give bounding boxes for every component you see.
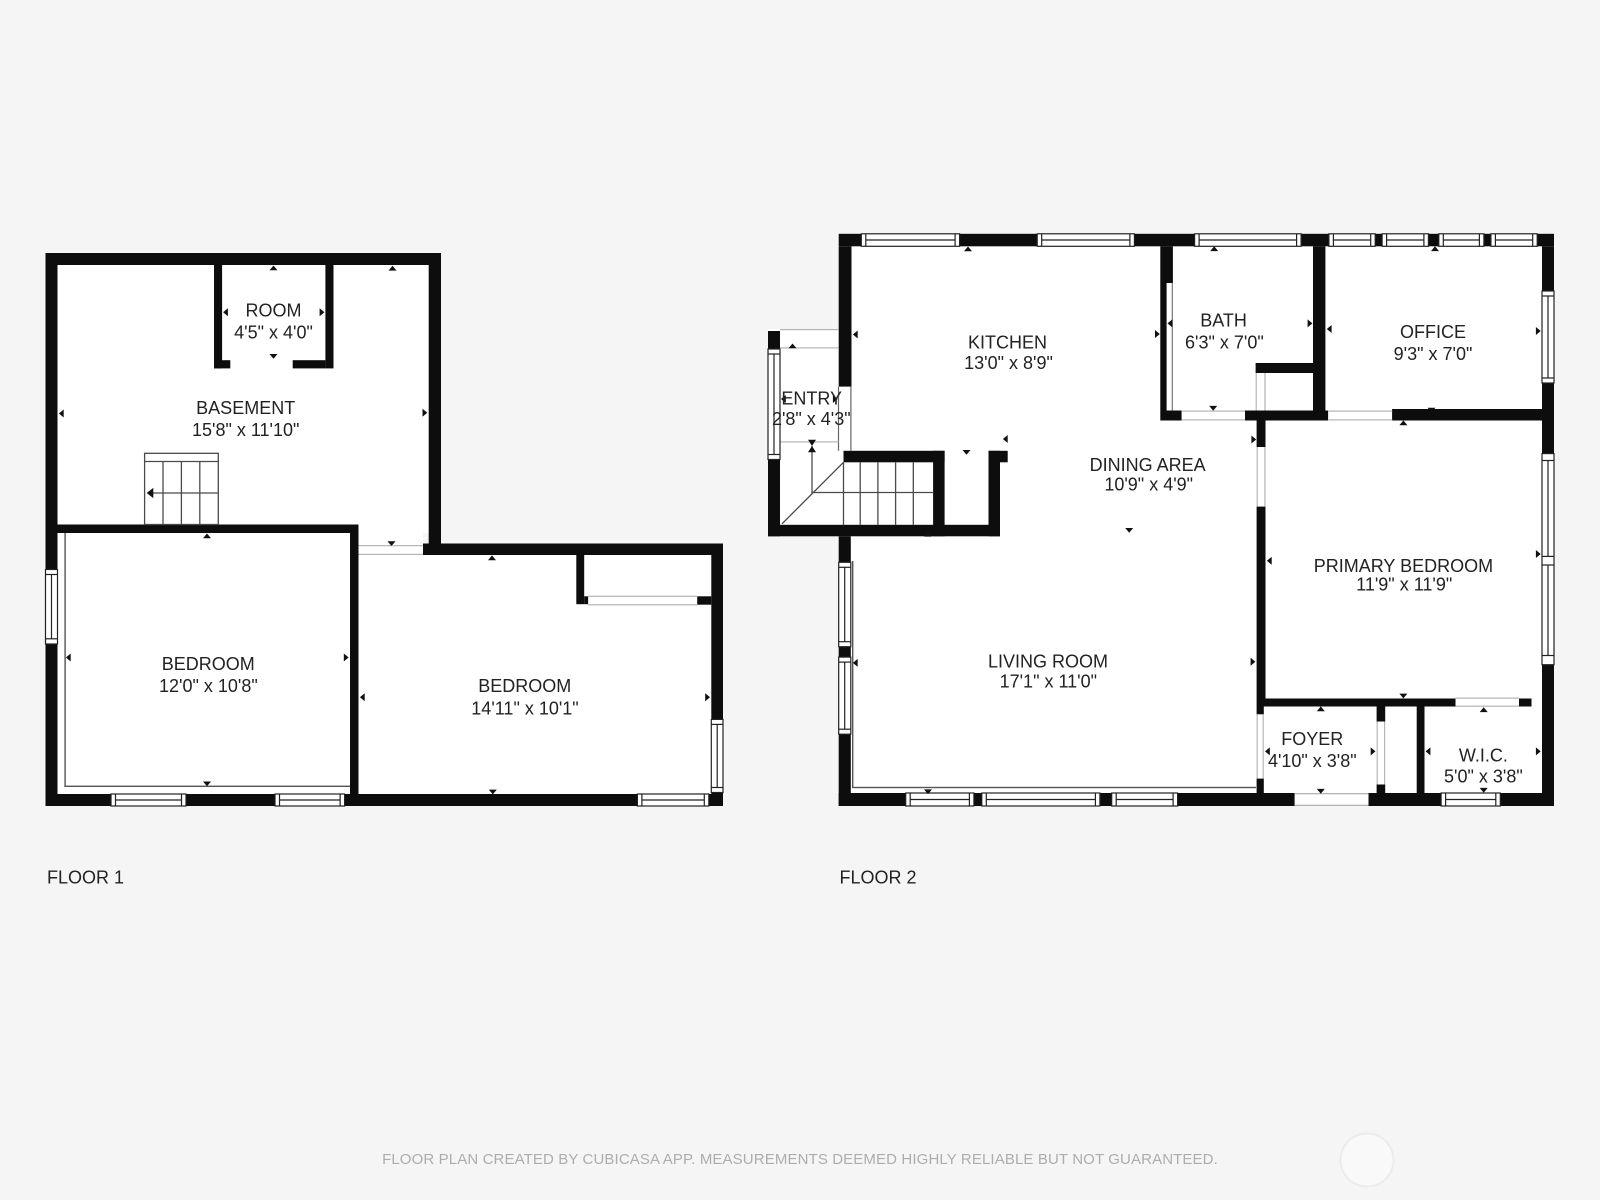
svg-text:ROOM: ROOM [246, 301, 302, 321]
svg-text:4'10" x 3'8": 4'10" x 3'8" [1268, 751, 1357, 771]
svg-text:13'0" x 8'9": 13'0" x 8'9" [964, 353, 1053, 373]
svg-text:10'9" x 4'9": 10'9" x 4'9" [1104, 475, 1193, 495]
svg-text:6'3" x 7'0": 6'3" x 7'0" [1185, 333, 1264, 353]
svg-text:W.I.C.: W.I.C. [1459, 746, 1508, 766]
svg-text:BATH: BATH [1200, 311, 1247, 331]
svg-text:FOYER: FOYER [1281, 729, 1343, 749]
svg-text:15'8" x 11'10": 15'8" x 11'10" [192, 420, 299, 440]
svg-text:FLOOR PLAN CREATED BY CUBICASA: FLOOR PLAN CREATED BY CUBICASA APP. MEAS… [382, 1151, 1218, 1168]
svg-text:FLOOR 2: FLOOR 2 [840, 868, 917, 888]
svg-text:17'1" x 11'0": 17'1" x 11'0" [1000, 671, 1097, 691]
svg-text:DINING AREA: DINING AREA [1090, 455, 1206, 475]
svg-text:PRIMARY BEDROOM: PRIMARY BEDROOM [1314, 556, 1493, 576]
svg-text:BEDROOM: BEDROOM [478, 676, 571, 696]
svg-text:OFFICE: OFFICE [1400, 322, 1466, 342]
svg-text:BEDROOM: BEDROOM [162, 654, 255, 674]
svg-text:BASEMENT: BASEMENT [196, 398, 295, 418]
svg-text:FLOOR 1: FLOOR 1 [47, 868, 124, 888]
svg-text:12'0" x 10'8": 12'0" x 10'8" [159, 676, 258, 696]
svg-text:11'9" x 11'9": 11'9" x 11'9" [1356, 575, 1452, 595]
svg-text:14'11" x 10'1": 14'11" x 10'1" [471, 698, 578, 718]
svg-text:9'3" x 7'0": 9'3" x 7'0" [1394, 344, 1473, 364]
svg-text:KITCHEN: KITCHEN [968, 333, 1047, 353]
svg-text:4'5" x 4'0": 4'5" x 4'0" [234, 323, 313, 343]
svg-text:5'0" x 3'8": 5'0" x 3'8" [1444, 767, 1523, 787]
svg-text:LIVING ROOM: LIVING ROOM [988, 652, 1108, 672]
svg-text:ENTRY: ENTRY [781, 388, 842, 408]
svg-text:2'8" x 4'3": 2'8" x 4'3" [772, 409, 851, 429]
